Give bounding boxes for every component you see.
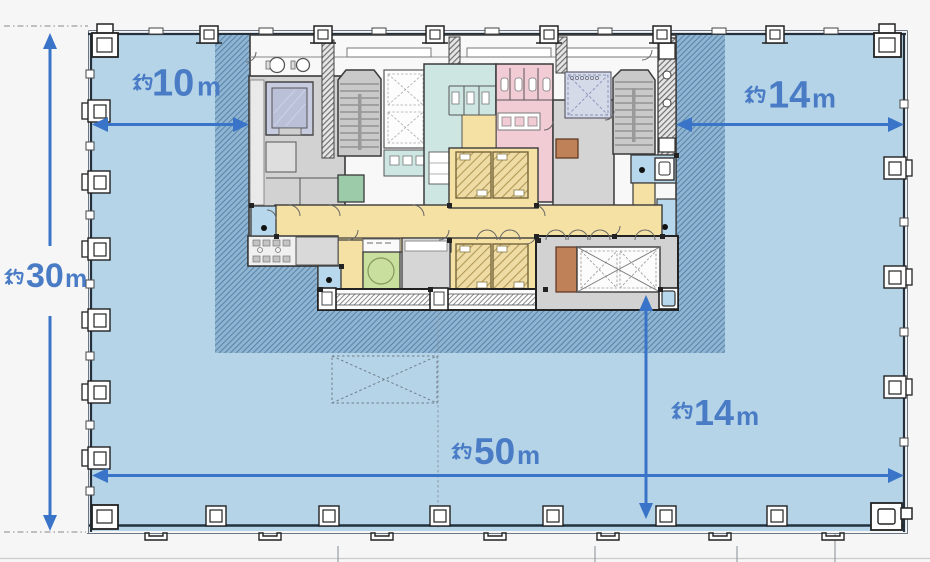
- svg-text:10: 10: [152, 63, 194, 105]
- svg-text:50: 50: [474, 431, 515, 472]
- svg-text:m: m: [812, 84, 836, 114]
- svg-text:14: 14: [694, 392, 734, 433]
- svg-text:m: m: [517, 440, 540, 470]
- svg-text:m: m: [736, 401, 759, 431]
- svg-text:m: m: [197, 72, 221, 102]
- svg-text:m: m: [65, 265, 87, 293]
- svg-text:14: 14: [768, 75, 810, 117]
- svg-text:30: 30: [26, 257, 64, 295]
